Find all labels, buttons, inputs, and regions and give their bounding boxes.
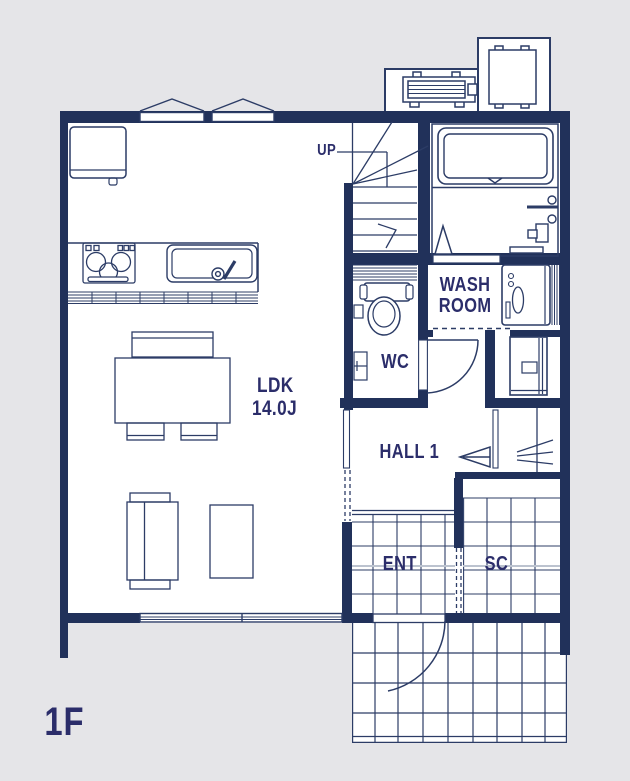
floor-plan-drawing [0, 0, 630, 781]
wall-wc-bottom [340, 398, 428, 408]
exterior-equipment [385, 38, 550, 115]
ldk-sliding-window-icon [140, 614, 342, 623]
wall-ent-sc-stub [454, 478, 463, 548]
entrance-room-label: ENT [370, 553, 430, 576]
wall-wc-right-lower [418, 390, 428, 408]
floor-number-label: 1F [40, 700, 89, 745]
wall-closet-bottom [455, 472, 570, 479]
stairs-up-label: UP [308, 142, 338, 160]
ldk-hall-door [344, 410, 350, 468]
wall-left [60, 111, 68, 658]
window-icon [140, 99, 204, 122]
wall-stairs-bath-divider [418, 111, 430, 263]
wall-washroom-stub-left [420, 330, 433, 337]
ldk-room-label: LDK [235, 374, 315, 398]
wall-top [60, 111, 570, 123]
shoe-closet-label: SC [466, 553, 526, 576]
toilet-paper-holder-icon [354, 305, 363, 318]
wall-closet-top [490, 398, 570, 408]
hall-room-label: HALL 1 [369, 441, 449, 464]
wall-hall-left-lower [342, 522, 352, 615]
washing-machine-icon [502, 265, 550, 325]
wall-ldk-wc [344, 183, 353, 410]
ac-outdoor-unit-icon [403, 72, 477, 107]
wc-cabinet-icon [354, 352, 367, 380]
wall-wc-right-upper [418, 263, 428, 340]
closet-doorway [493, 410, 498, 468]
wall-right [560, 111, 570, 655]
washroom-label: WASH ROOM [428, 275, 502, 317]
wall-bottom-left [60, 613, 140, 623]
floor-plan: UP LDK 14.0J WC WASH ROOM HALL 1 ENT SC … [0, 0, 630, 781]
water-heater-icon [489, 46, 536, 108]
bathroom-doorway [433, 255, 500, 263]
wall-corridor-right [485, 330, 495, 408]
ldk-size-label: 14.0J [235, 397, 315, 421]
wall-washroom-stub-right [510, 330, 562, 337]
wall-bottom-right [445, 613, 563, 623]
wc-room-label: WC [370, 351, 420, 374]
window-icon [212, 99, 274, 122]
